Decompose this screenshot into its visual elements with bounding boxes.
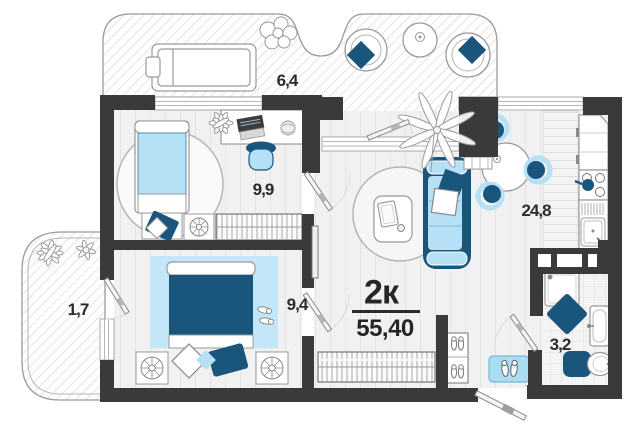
tv-icon — [312, 226, 318, 278]
vent-shaft — [530, 248, 608, 274]
office-chair-icon — [246, 142, 276, 171]
fan-stool-icon — [136, 352, 168, 384]
balcony-area — [22, 232, 105, 400]
kitchen-window — [498, 97, 583, 110]
sofa-icon — [423, 157, 471, 269]
living-kitchen-area-label: 24,8 — [521, 201, 550, 221]
fan-stool-icon — [184, 214, 214, 240]
round-chair-icon — [345, 29, 387, 71]
bathroom-area-label: 3,2 — [550, 335, 571, 355]
round-chair-icon — [446, 33, 490, 77]
terrace-area-label: 6,4 — [277, 71, 298, 91]
wardrobe-icon — [216, 214, 302, 240]
hall-wardrobe-icon — [318, 352, 435, 382]
bedroom-2-area-label: 9,4 — [287, 295, 308, 315]
entrance-door — [474, 390, 526, 421]
apartment-type-label: 2к — [364, 274, 398, 313]
bedroom-1-window — [155, 97, 262, 110]
door-mat-icon — [489, 356, 529, 382]
stove-icon — [575, 170, 608, 200]
radiator-icon — [464, 157, 492, 169]
floor-plan-drawing — [0, 0, 640, 444]
kitchen-counter-icon — [576, 115, 608, 170]
kitchen-floor-strip — [543, 111, 578, 250]
title-divider — [352, 310, 420, 313]
terrace-table-icon — [403, 23, 437, 57]
toilet-icon — [563, 351, 613, 377]
desk-plant-icon — [281, 121, 295, 135]
coffee-table-icon — [374, 196, 412, 242]
single-bed-icon — [135, 121, 189, 242]
bedroom-1-area-label: 9,9 — [253, 180, 274, 200]
floor-plan: 6,4 9,9 9,4 24,8 3,2 1,7 2к 55,40 — [0, 0, 640, 444]
sun-lounger-icon — [146, 44, 256, 91]
double-bed-icon — [167, 262, 255, 348]
balcony-area-label: 1,7 — [68, 300, 89, 320]
balcony-window — [100, 319, 114, 360]
fan-stool-icon — [256, 352, 288, 384]
shoe-rack-icon — [447, 333, 468, 383]
total-area-label: 55,40 — [356, 315, 414, 343]
laptop-icon — [236, 115, 265, 140]
bathroom-sink-icon — [587, 306, 609, 346]
